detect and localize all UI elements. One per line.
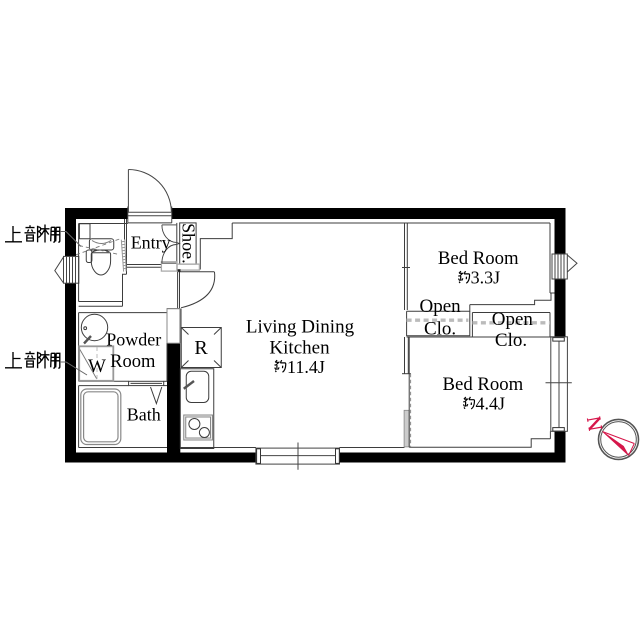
svg-text:R: R [194,337,208,359]
svg-text:Clo.: Clo. [424,319,456,340]
svg-text:Clo.: Clo. [495,330,527,351]
svg-text:Open: Open [420,296,462,317]
svg-text:4.4J: 4.4J [476,394,506,414]
svg-text:Bed Room: Bed Room [443,374,524,395]
svg-text:11.4J: 11.4J [287,357,325,377]
svg-text:Bath: Bath [127,405,161,425]
svg-text:3.3J: 3.3J [471,268,501,288]
svg-text:W: W [88,356,106,377]
svg-text:Bed Room: Bed Room [438,248,519,269]
svg-text:Living Dining: Living Dining [246,317,355,338]
svg-text:Shoe.: Shoe. [178,223,198,264]
svg-text:Powder: Powder [106,330,161,350]
svg-text:Entry: Entry [131,232,171,252]
svg-text:Open: Open [492,309,534,330]
svg-text:Kitchen: Kitchen [269,338,330,359]
svg-text:Room: Room [110,352,156,372]
